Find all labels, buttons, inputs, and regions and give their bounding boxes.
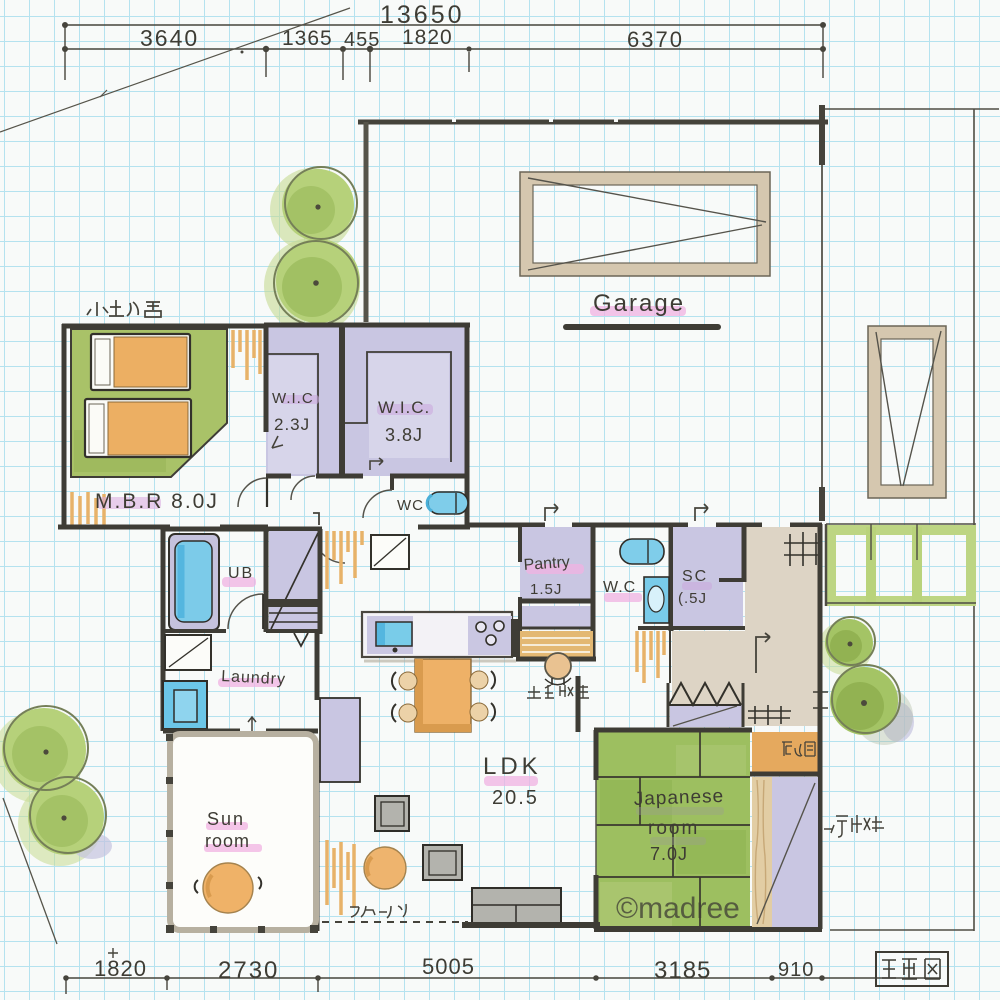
svg-text:M.B.R 8.0J: M.B.R 8.0J — [95, 490, 219, 513]
svg-text:20.5: 20.5 — [492, 787, 539, 809]
svg-text:Pantry: Pantry — [523, 554, 570, 574]
svg-text:2730: 2730 — [218, 957, 279, 984]
svg-text:W.I.C.: W.I.C. — [378, 398, 430, 417]
svg-text:1820: 1820 — [94, 956, 147, 981]
svg-text:910: 910 — [778, 959, 814, 981]
svg-text:3640: 3640 — [140, 25, 199, 51]
svg-text:1365: 1365 — [282, 27, 333, 50]
svg-text:1.5J: 1.5J — [530, 581, 562, 598]
svg-text:2.3J: 2.3J — [274, 415, 310, 434]
svg-text:WC: WC — [397, 497, 424, 514]
svg-text:W.I.C: W.I.C — [272, 390, 314, 407]
svg-text:13650: 13650 — [380, 1, 465, 29]
svg-text:455: 455 — [344, 29, 380, 51]
svg-text:©madree: ©madree — [616, 892, 740, 925]
svg-text:room: room — [648, 818, 699, 839]
svg-text:Garage: Garage — [593, 290, 685, 317]
svg-text:UB: UB — [228, 565, 254, 582]
svg-text:W.C: W.C — [603, 579, 636, 596]
svg-text:(.5J: (.5J — [678, 590, 707, 607]
svg-text:7.0J: 7.0J — [650, 844, 688, 864]
svg-text:LDK: LDK — [483, 753, 542, 780]
svg-text:5005: 5005 — [422, 954, 475, 979]
svg-text:room: room — [205, 831, 250, 851]
svg-text:1820: 1820 — [402, 26, 453, 49]
svg-text:3.8J: 3.8J — [385, 425, 423, 445]
svg-text:SC: SC — [682, 568, 708, 585]
svg-text:6370: 6370 — [627, 27, 684, 52]
svg-text:Laundry: Laundry — [221, 668, 287, 688]
svg-text:3185: 3185 — [654, 957, 711, 984]
svg-text:Sun: Sun — [207, 809, 245, 829]
svg-text:Japanese: Japanese — [633, 786, 724, 810]
